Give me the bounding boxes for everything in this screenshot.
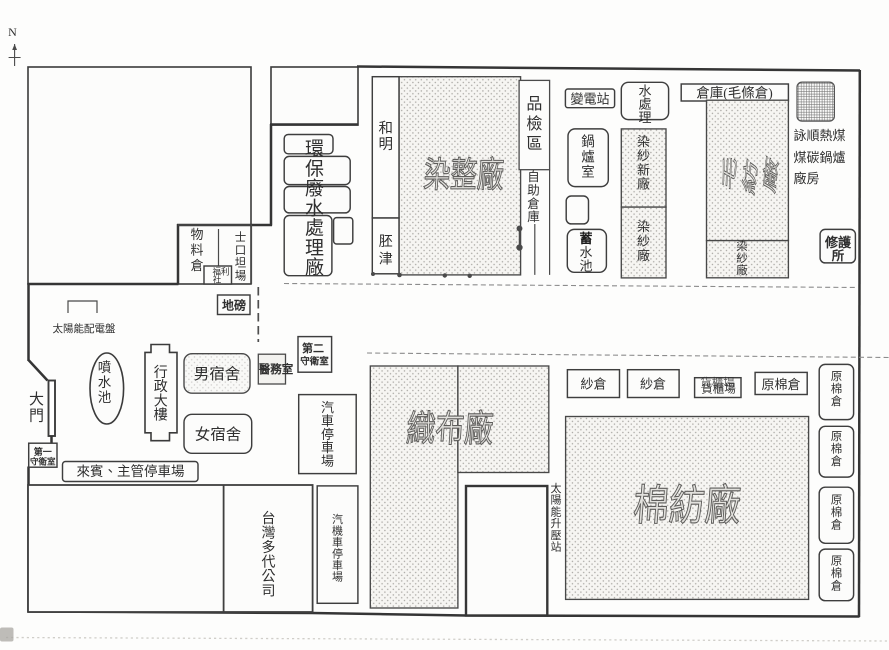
svg-text:染紗廠: 染紗廠 bbox=[637, 219, 650, 263]
svg-text:所: 所 bbox=[832, 248, 845, 263]
svg-text:紗倉: 紗倉 bbox=[580, 377, 606, 392]
svg-text:物料倉: 物料倉 bbox=[190, 227, 203, 273]
svg-text:修護: 修護 bbox=[824, 235, 852, 250]
svg-text:詠順熱煤: 詠順熱煤 bbox=[794, 128, 846, 143]
svg-text:織布廠: 織布廠 bbox=[405, 409, 495, 450]
svg-text:地磅: 地磅 bbox=[222, 298, 246, 313]
svg-text:守衛室: 守衛室 bbox=[30, 457, 56, 467]
svg-text:社: 社 bbox=[213, 275, 222, 285]
svg-text:自助倉庫: 自助倉庫 bbox=[527, 170, 540, 224]
svg-text:原棉倉: 原棉倉 bbox=[831, 371, 843, 408]
svg-text:第二: 第二 bbox=[302, 341, 324, 355]
svg-text:女宿舍: 女宿舍 bbox=[195, 425, 242, 444]
svg-text:守衛室: 守衛室 bbox=[300, 356, 329, 368]
svg-text:士口坦場: 士口坦場 bbox=[235, 231, 247, 282]
svg-text:原棉倉: 原棉倉 bbox=[831, 495, 843, 532]
svg-text:原棉倉: 原棉倉 bbox=[831, 431, 843, 468]
svg-text:煤碳鍋爐: 煤碳鍋爐 bbox=[794, 150, 846, 165]
svg-text:廠房: 廠房 bbox=[794, 171, 820, 186]
svg-text:貨櫃場: 貨櫃場 bbox=[701, 382, 736, 396]
svg-text:和明: 和明 bbox=[378, 120, 393, 153]
svg-text:來賓、主管停車場: 來賓、主管停車場 bbox=[77, 463, 185, 479]
svg-text:第一: 第一 bbox=[34, 446, 52, 457]
svg-text:大門: 大門 bbox=[29, 391, 44, 425]
svg-text:染紗廠: 染紗廠 bbox=[736, 239, 748, 277]
svg-text:棉紡廠: 棉紡廠 bbox=[632, 482, 743, 530]
svg-text:染紗新廠: 染紗新廠 bbox=[637, 134, 650, 192]
svg-text:噴水池: 噴水池 bbox=[98, 360, 112, 405]
svg-text:N: N bbox=[8, 25, 17, 39]
svg-text:變電站: 變電站 bbox=[570, 92, 609, 107]
svg-text:蓄水池: 蓄水池 bbox=[579, 231, 592, 274]
svg-text:鍋爐室: 鍋爐室 bbox=[581, 134, 595, 180]
svg-text:環保廢水處理廠: 環保廢水處理廠 bbox=[305, 139, 324, 279]
svg-text:原棉倉: 原棉倉 bbox=[831, 556, 843, 593]
svg-text:汽機車停車場: 汽機車停車場 bbox=[332, 512, 343, 584]
svg-text:行政大樓: 行政大樓 bbox=[154, 365, 168, 424]
svg-text:太陽能配電盤: 太陽能配電盤 bbox=[53, 322, 116, 335]
svg-text:汽車停車場: 汽車停車場 bbox=[321, 400, 334, 469]
svg-text:台灣多代公司: 台灣多代公司 bbox=[262, 511, 276, 600]
svg-text:品檢區: 品檢區 bbox=[526, 96, 542, 153]
svg-text:紗倉: 紗倉 bbox=[640, 377, 666, 392]
svg-text:水處理: 水處理 bbox=[638, 84, 651, 125]
svg-text:男宿舍: 男宿舍 bbox=[194, 365, 241, 383]
svg-text:染整廠: 染整廠 bbox=[422, 155, 505, 195]
svg-text:原棉倉: 原棉倉 bbox=[761, 377, 800, 392]
svg-text:太陽能升壓站: 太陽能升壓站 bbox=[551, 482, 562, 554]
svg-text:醫務室: 醫務室 bbox=[259, 362, 294, 376]
svg-text:倉庫(毛條倉): 倉庫(毛條倉) bbox=[696, 86, 773, 101]
